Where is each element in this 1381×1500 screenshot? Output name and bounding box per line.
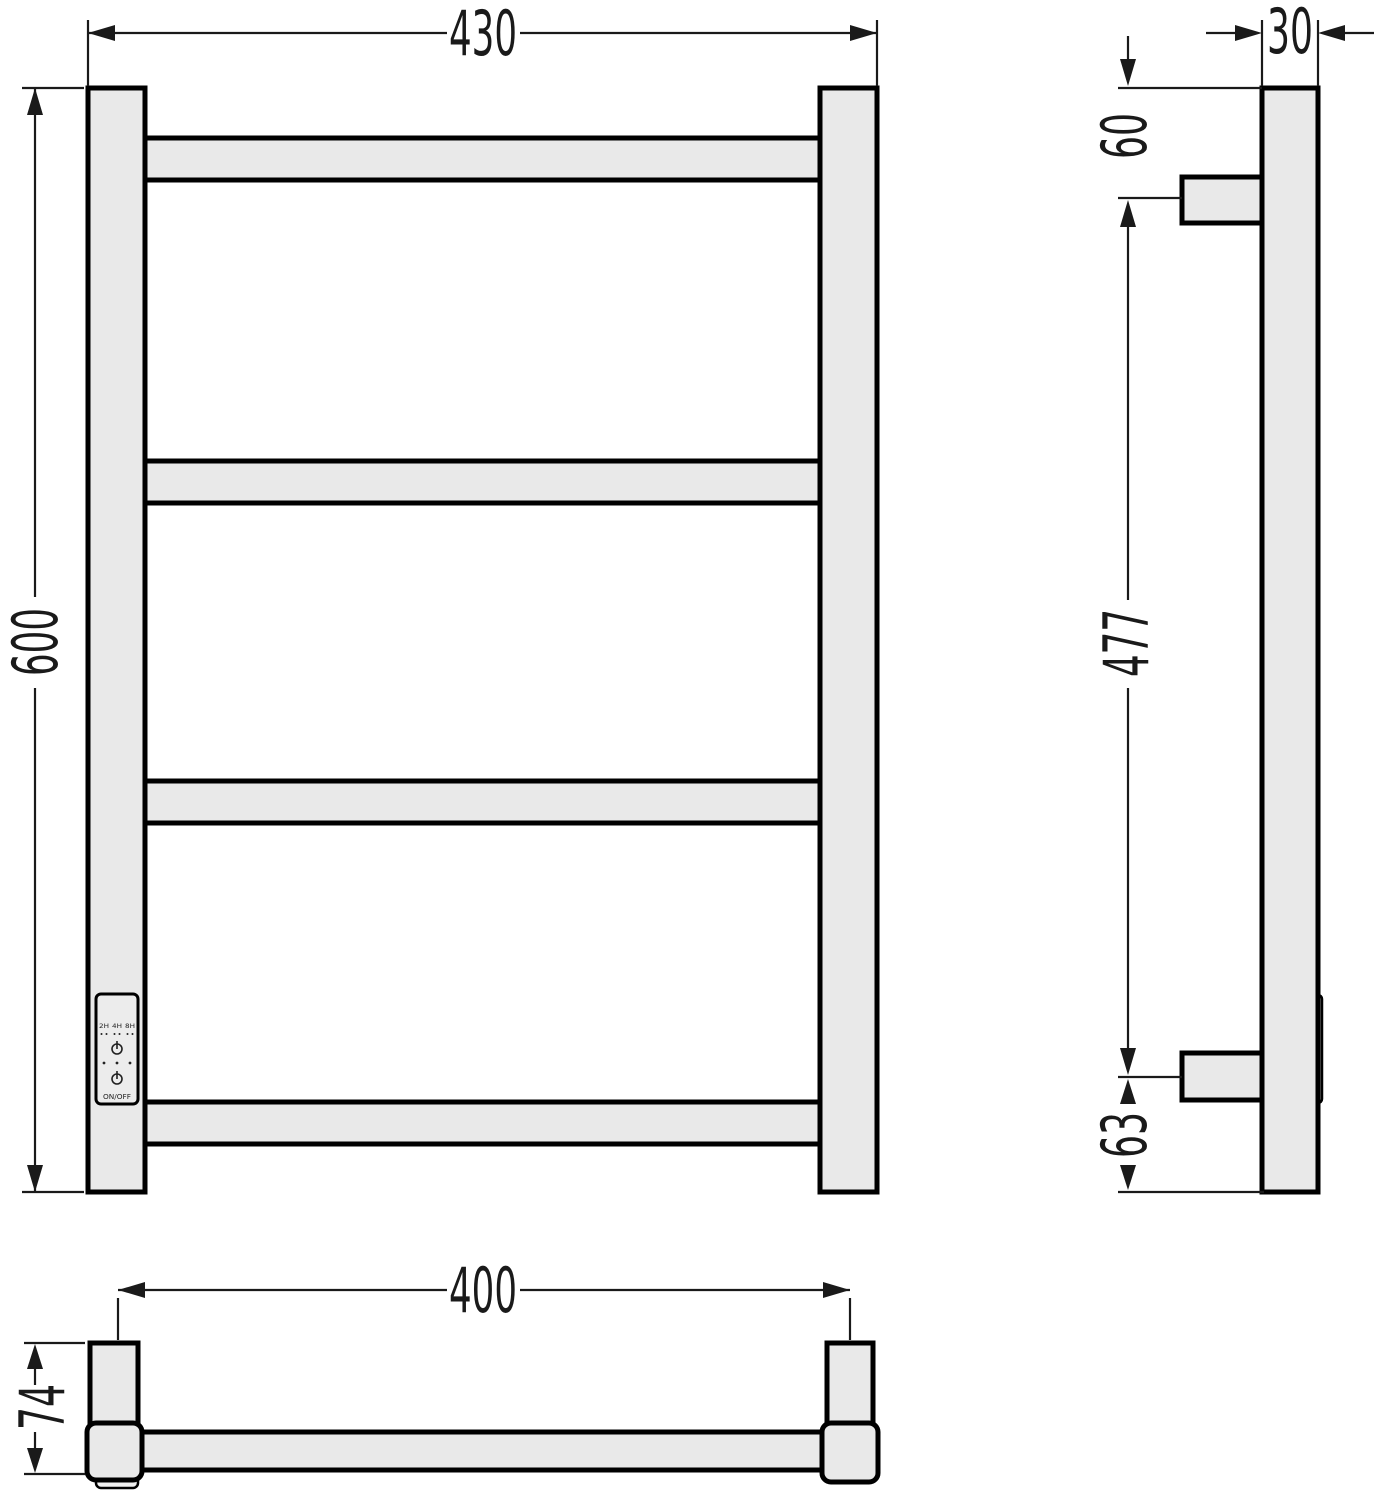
bottom-left-bracket [90, 1343, 138, 1425]
dim-bottom-depth: 74 [6, 1343, 85, 1474]
dim-bottom-depth-value: 74 [6, 1384, 79, 1430]
dim-arrow-right [823, 1282, 850, 1298]
dim-arrow-left [1318, 25, 1345, 41]
side-post-profile [1262, 88, 1318, 1192]
front-view: 2H 4H 8H [0, 0, 877, 1192]
front-right-post [820, 88, 877, 1192]
dim-side-depth-value: 30 [1267, 0, 1313, 68]
towel-rail-dimension-drawing: 2H 4H 8H [0, 0, 1381, 1500]
on-off-label: ON/OFF [103, 1093, 131, 1101]
front-crossbar-4 [140, 1102, 825, 1144]
side-top-bracket [1182, 177, 1262, 223]
front-crossbar-2 [140, 461, 825, 503]
dim-side-bottom-offset-value: 63 [1088, 1112, 1161, 1158]
dim-arrow-left [88, 25, 115, 41]
front-crossbar-1 [140, 138, 825, 180]
dim-front-height: 600 [0, 88, 84, 1192]
bottom-right-bracket [827, 1343, 873, 1425]
dim-bottom-width-value: 400 [449, 1254, 517, 1327]
dim-arrow-down [27, 1448, 43, 1473]
dim-front-height-value: 600 [0, 608, 72, 676]
dim-bottom-width: 400 [118, 1254, 850, 1340]
side-bottom-bracket [1182, 1053, 1262, 1100]
bottom-left-post-section [87, 1423, 142, 1480]
dim-arrow-up [1120, 1079, 1136, 1104]
timer-label-8h: 8H [125, 1023, 135, 1030]
dim-arrow-right [850, 25, 877, 41]
dim-arrow-down [1120, 1048, 1136, 1075]
dim-arrow-right [1235, 25, 1262, 41]
dim-arrow-up [27, 1344, 43, 1369]
timer-label-4h: 4H [112, 1023, 122, 1030]
dim-arrow-up [27, 88, 43, 115]
timer-label-2h: 2H [99, 1023, 109, 1030]
dim-arrow-down [1120, 59, 1136, 86]
dim-side-bracket-span: 477 [1090, 227, 1163, 1075]
dim-arrow-left [118, 1282, 145, 1298]
dim-front-width: 430 [88, 0, 877, 86]
dim-arrow-down [27, 1165, 43, 1192]
bottom-right-post-section [822, 1423, 878, 1482]
front-crossbar-3 [140, 781, 825, 823]
bottom-bar [140, 1432, 825, 1470]
dim-arrow-down [1120, 1165, 1136, 1190]
dim-front-width-value: 430 [449, 0, 517, 70]
bottom-view: 400 74 [6, 1254, 878, 1488]
dim-side-depth: 30 [1206, 0, 1374, 86]
dim-side-top-offset-value: 60 [1088, 113, 1161, 159]
control-panel: 2H 4H 8H [96, 994, 138, 1104]
dim-side-bracket-span-value: 477 [1090, 609, 1163, 677]
dim-arrow-up [1120, 200, 1136, 227]
side-view: 30 60 477 63 [1088, 0, 1374, 1192]
